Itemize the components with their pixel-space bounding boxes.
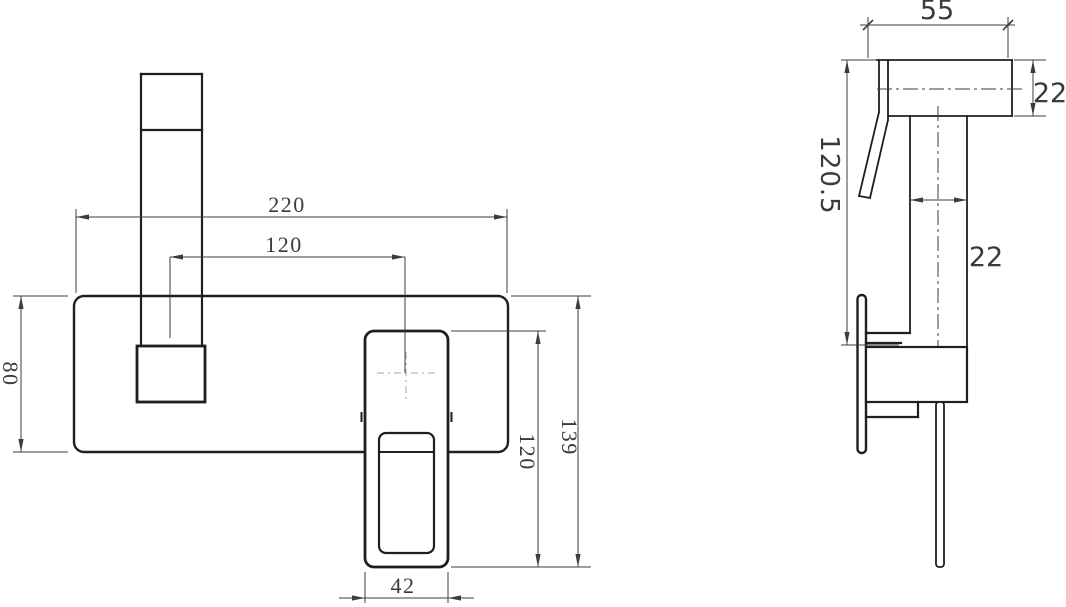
dim-label-overall-height: 139	[557, 418, 582, 456]
side-centerlines	[877, 89, 1022, 346]
dim-label-tube-width: 22	[969, 242, 1003, 273]
side-view: 55 22 22 120.5	[814, 0, 1066, 567]
side-handle-lever	[936, 402, 944, 567]
dim-overall-height: 139	[511, 296, 591, 567]
dim-handle-width: 42	[339, 572, 474, 603]
front-view: 220 120 80 120	[0, 74, 591, 603]
front-handle	[362, 331, 452, 567]
side-wall-plate	[858, 295, 867, 453]
dim-label-mount-depth: 120.5	[814, 135, 844, 214]
dim-label-spout-to-handle: 120	[265, 232, 303, 257]
dim-label-plate-height: 80	[0, 362, 23, 387]
side-spout	[859, 60, 1012, 198]
dim-tube-width: 22	[910, 197, 1003, 273]
dim-label-plate-width: 220	[268, 192, 306, 217]
dim-plate-height: 80	[0, 296, 68, 452]
side-valve-body	[866, 333, 967, 417]
dim-label-handle-height: 120	[515, 433, 540, 471]
dim-label-spout-height: 22	[1033, 78, 1066, 109]
front-spout-base-square	[137, 346, 205, 402]
drawing-canvas: 220 120 80 120	[0, 0, 1066, 607]
dim-label-handle-width: 42	[391, 573, 416, 598]
dim-label-spout-reach: 55	[920, 0, 954, 26]
dim-spout-height: 22	[1014, 60, 1066, 116]
dim-spout-reach: 55	[860, 0, 1015, 58]
technical-drawing: 220 120 80 120	[0, 0, 1066, 607]
